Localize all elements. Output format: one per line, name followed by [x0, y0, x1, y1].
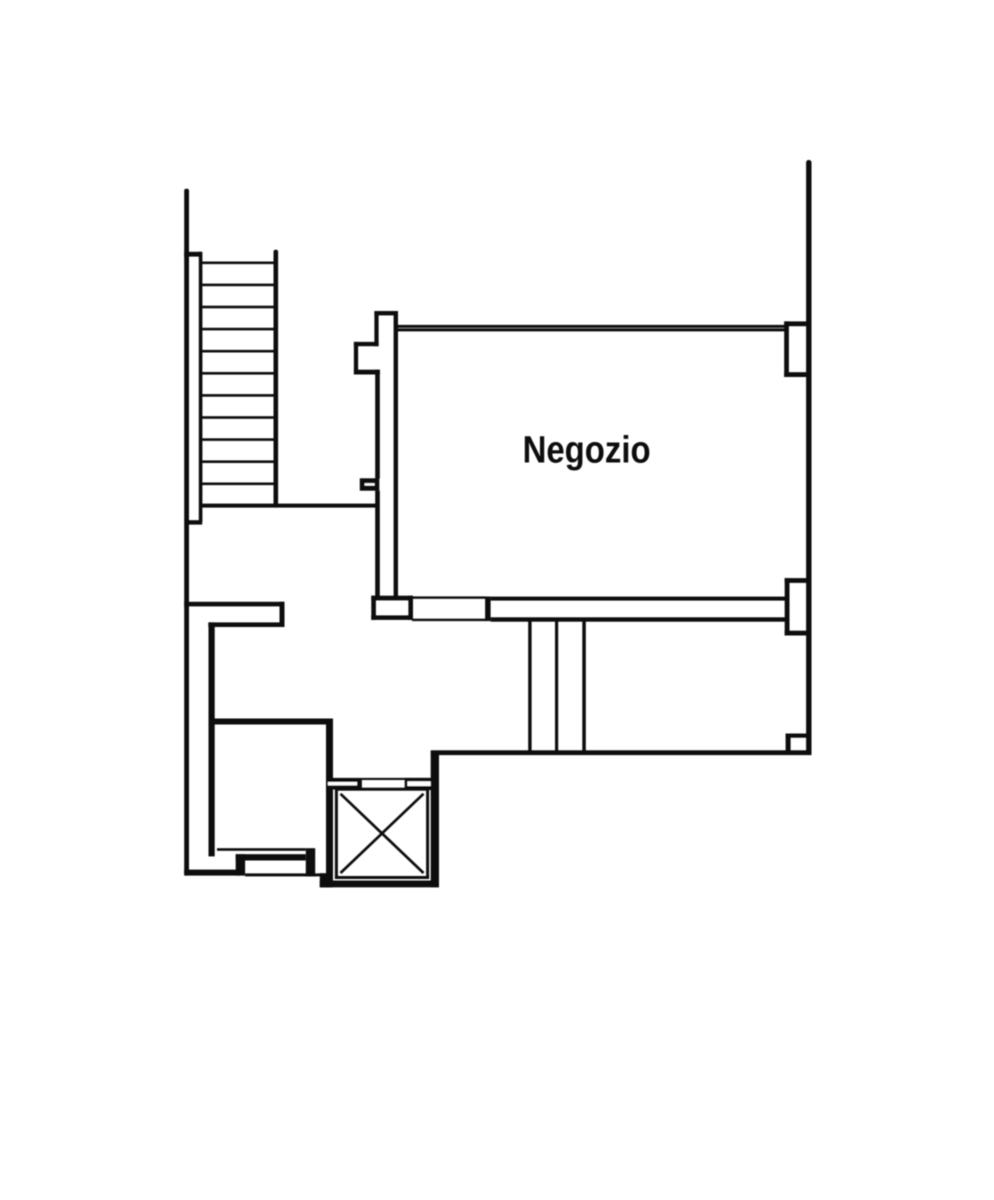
- svg-text:Negozio: Negozio: [523, 430, 651, 472]
